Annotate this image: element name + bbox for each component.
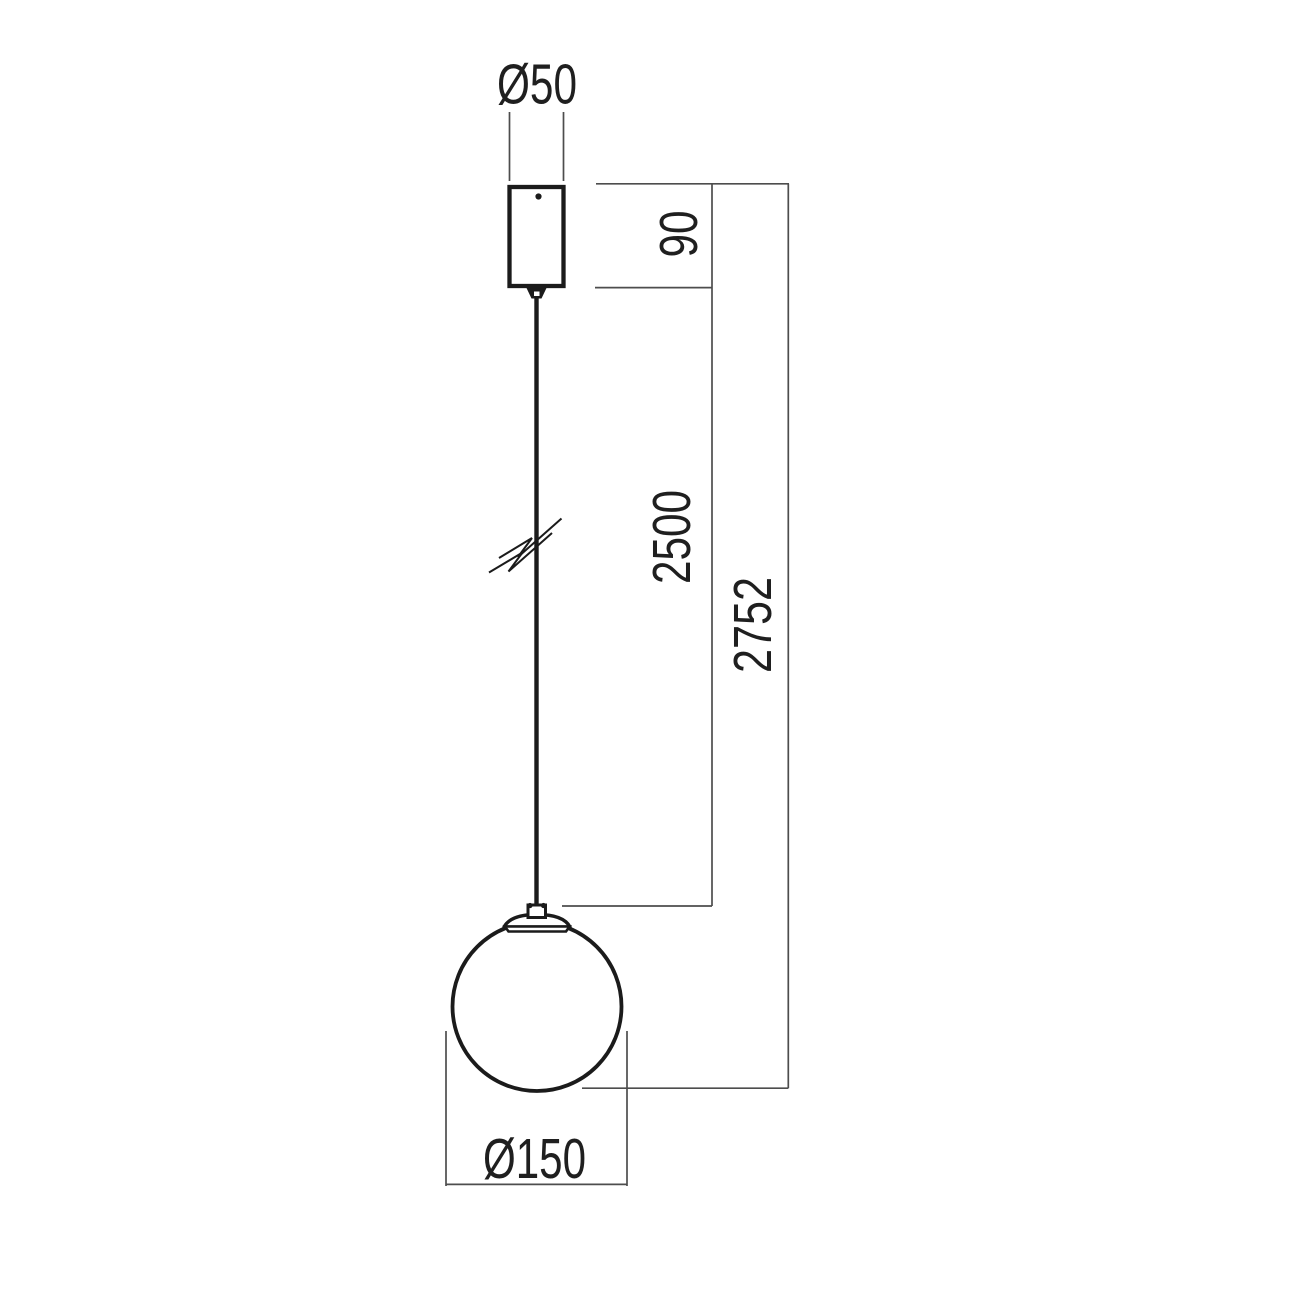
- label-overall-drop: 2752: [723, 577, 783, 673]
- label-canopy-diameter: Ø50: [497, 53, 577, 117]
- drawing-page: Ø50 90 2500 2752 Ø150: [0, 0, 1300, 1300]
- cable-break-icon: [489, 519, 562, 573]
- strain-relief-hole: [534, 292, 540, 297]
- label-suspension-length: 2500: [642, 490, 702, 584]
- canopy-screw: [535, 193, 541, 199]
- globe-holder-rim: [505, 927, 570, 932]
- collar-nub-left: [527, 903, 532, 908]
- collar-nub-right: [541, 903, 546, 908]
- fixture: [453, 187, 622, 1091]
- ceiling-canopy: [510, 187, 564, 286]
- label-canopy-height: 90: [649, 211, 709, 258]
- globe-shade: [453, 922, 622, 1091]
- break-line-lower: [489, 533, 552, 573]
- pendant-lamp-dimension-drawing: Ø50 90 2500 2752 Ø150: [0, 0, 1300, 1300]
- label-globe-diameter: Ø150: [483, 1127, 586, 1191]
